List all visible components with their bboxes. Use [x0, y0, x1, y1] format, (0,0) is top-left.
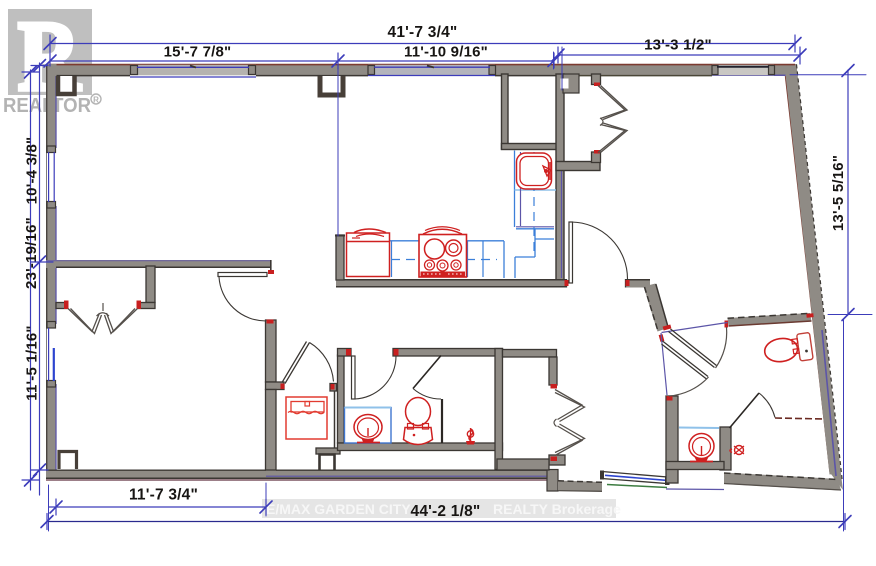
svg-text:11'-7 3/4": 11'-7 3/4": [129, 487, 198, 504]
svg-text:15'-7 7/8": 15'-7 7/8": [164, 44, 232, 61]
svg-text:13'-5 5/16": 13'-5 5/16": [830, 155, 847, 231]
svg-text:REALTY Brokerage: REALTY Brokerage: [493, 501, 621, 517]
svg-text:10'-4 3/8": 10'-4 3/8": [24, 137, 41, 205]
svg-text:11'-10 9/16": 11'-10 9/16": [404, 44, 488, 61]
svg-text:11'-5 1/16": 11'-5 1/16": [24, 325, 41, 400]
svg-text:13'-3 1/2": 13'-3 1/2": [644, 37, 712, 54]
svg-text:23'-19/16": 23'-19/16": [23, 217, 40, 289]
svg-text:E/MAX GARDEN CITY: E/MAX GARDEN CITY: [266, 501, 411, 517]
svg-text:44'-2 1/8": 44'-2 1/8": [411, 503, 481, 520]
svg-text:41'-7 3/4": 41'-7 3/4": [388, 24, 458, 41]
svg-text:R: R: [93, 96, 99, 105]
